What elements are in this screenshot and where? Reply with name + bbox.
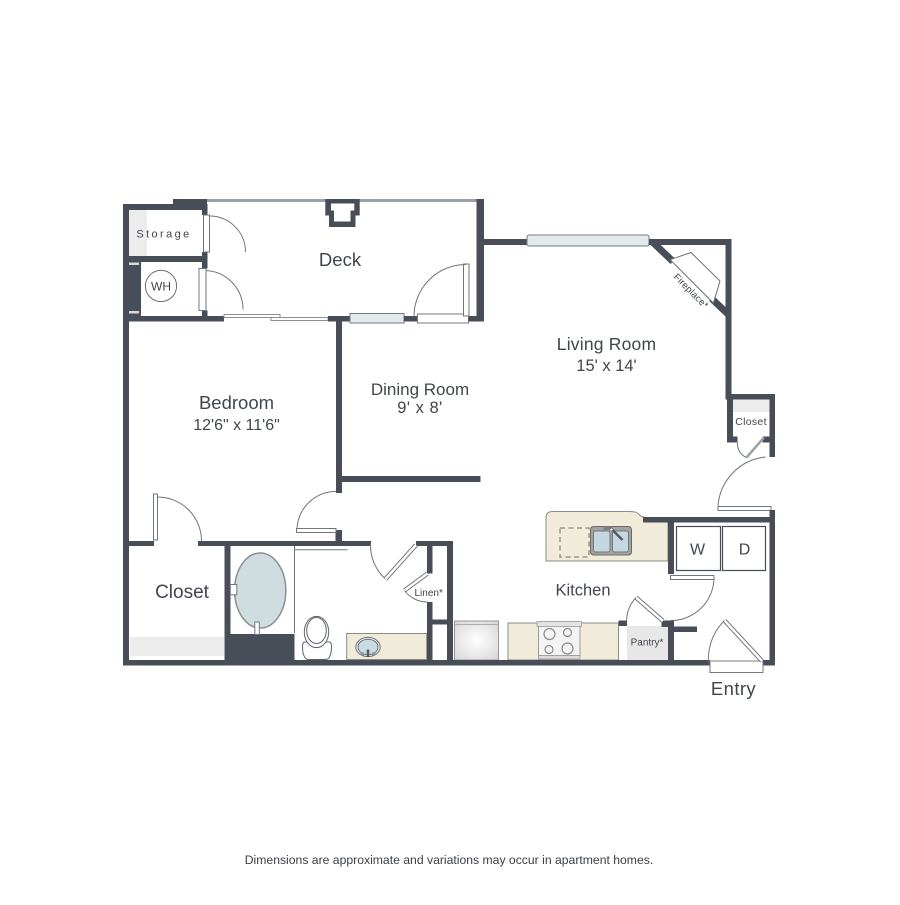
- svg-text:Closet: Closet: [155, 582, 210, 603]
- svg-text:Closet: Closet: [735, 416, 767, 428]
- svg-text:Dining Room: Dining Room: [371, 380, 469, 399]
- svg-text:9' x 8': 9' x 8': [397, 399, 443, 417]
- svg-text:WH: WH: [151, 280, 171, 294]
- svg-text:Living Room: Living Room: [557, 334, 656, 354]
- svg-text:D: D: [739, 542, 751, 559]
- svg-text:Deck: Deck: [319, 249, 362, 270]
- svg-text:12'6" x 11'6": 12'6" x 11'6": [193, 417, 280, 434]
- svg-text:Linen*: Linen*: [415, 588, 443, 599]
- svg-text:Dimensions are approximate and: Dimensions are approximate and variation…: [245, 853, 653, 867]
- svg-text:Entry: Entry: [711, 678, 757, 699]
- svg-text:Kitchen: Kitchen: [555, 582, 610, 600]
- svg-text:Bedroom: Bedroom: [199, 392, 274, 413]
- svg-text:Pantry*: Pantry*: [631, 638, 664, 649]
- svg-text:Storage: Storage: [136, 229, 191, 241]
- svg-text:15' x 14': 15' x 14': [576, 357, 636, 375]
- svg-text:W: W: [690, 542, 706, 559]
